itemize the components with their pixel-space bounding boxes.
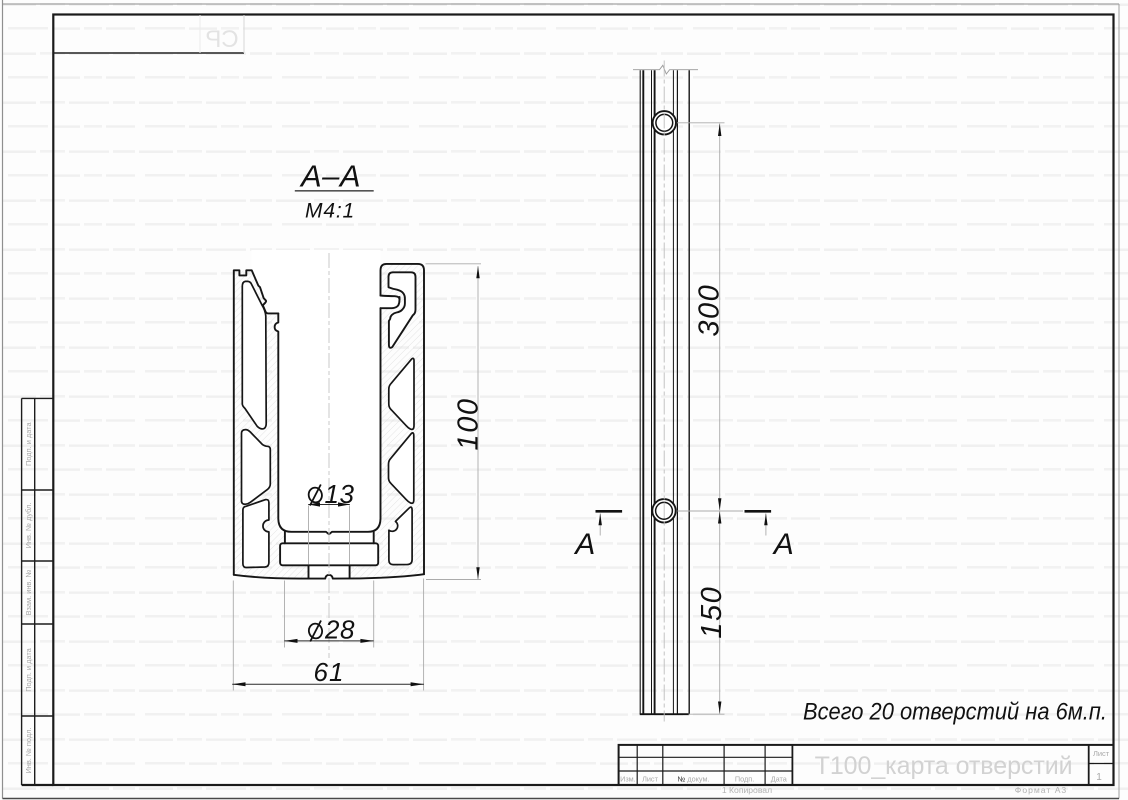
- svg-text:Взам. инв. №: Взам. инв. №: [24, 570, 33, 616]
- svg-text:Изм.: Изм.: [620, 775, 636, 784]
- svg-text:Инв. № подл.: Инв. № подл.: [24, 727, 33, 773]
- svg-text:100: 100: [453, 398, 485, 451]
- svg-text:Формат А3: Формат А3: [1015, 785, 1067, 795]
- svg-text:Инв. № дубл.: Инв. № дубл.: [24, 503, 33, 549]
- svg-text:№ докум.: № докум.: [677, 775, 709, 784]
- svg-text:Лист: Лист: [642, 775, 659, 784]
- svg-text:1: 1: [1096, 772, 1102, 783]
- svg-text:Подп.: Подп.: [735, 775, 754, 784]
- svg-text:28: 28: [324, 615, 355, 645]
- svg-text:Подп. и дата: Подп. и дата: [24, 422, 33, 466]
- svg-text:Дата: Дата: [771, 775, 788, 784]
- svg-text:150: 150: [696, 586, 728, 639]
- svg-text:300: 300: [694, 284, 726, 337]
- svg-text:CP: CP: [205, 26, 238, 53]
- svg-text:Подп. и дата: Подп. и дата: [24, 647, 33, 691]
- svg-text:М4:1: М4:1: [305, 200, 355, 223]
- svg-text:А: А: [573, 528, 595, 561]
- svg-text:61: 61: [314, 657, 345, 687]
- svg-text:Всего 20 отверстий на 6м.п.: Всего 20 отверстий на 6м.п.: [803, 698, 1107, 725]
- svg-text:Лист: Лист: [1093, 749, 1110, 758]
- svg-text:1 Копировал: 1 Копировал: [722, 785, 772, 795]
- svg-text:Т100_карта отверстий: Т100_карта отверстий: [815, 752, 1073, 780]
- svg-text:А: А: [772, 528, 794, 561]
- svg-text:13: 13: [325, 479, 355, 509]
- svg-text:A–A: A–A: [299, 159, 361, 194]
